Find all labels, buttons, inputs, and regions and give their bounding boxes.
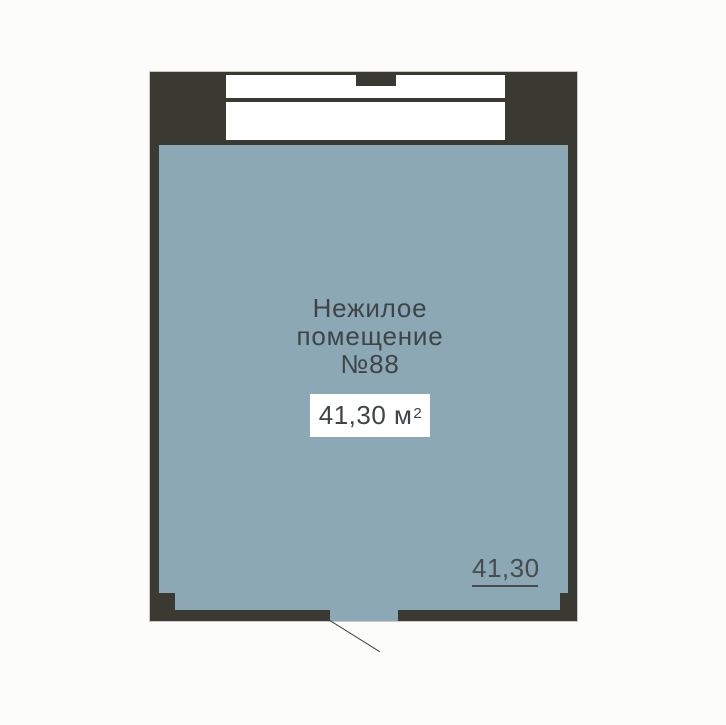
room-label-line1: Нежилое [150, 294, 590, 322]
area-badge: 41,30 м2 [310, 394, 430, 437]
door-swing-line [329, 620, 380, 652]
door-opening [330, 610, 398, 621]
room-number: №88 [150, 350, 590, 378]
area-value: 41,30 м [319, 400, 413, 431]
wall-notch-left [159, 593, 175, 610]
floorplan-canvas: Нежилое помещение №88 41,30 м2 41,30 [0, 0, 726, 725]
room-label-line2: помещение [150, 322, 590, 350]
room-label: Нежилое помещение №88 [150, 294, 590, 378]
wall-stub [356, 72, 396, 86]
window-pane-bottom [226, 102, 505, 140]
dimension-label: 41,30 [472, 553, 538, 587]
wall-notch-right [560, 593, 568, 610]
